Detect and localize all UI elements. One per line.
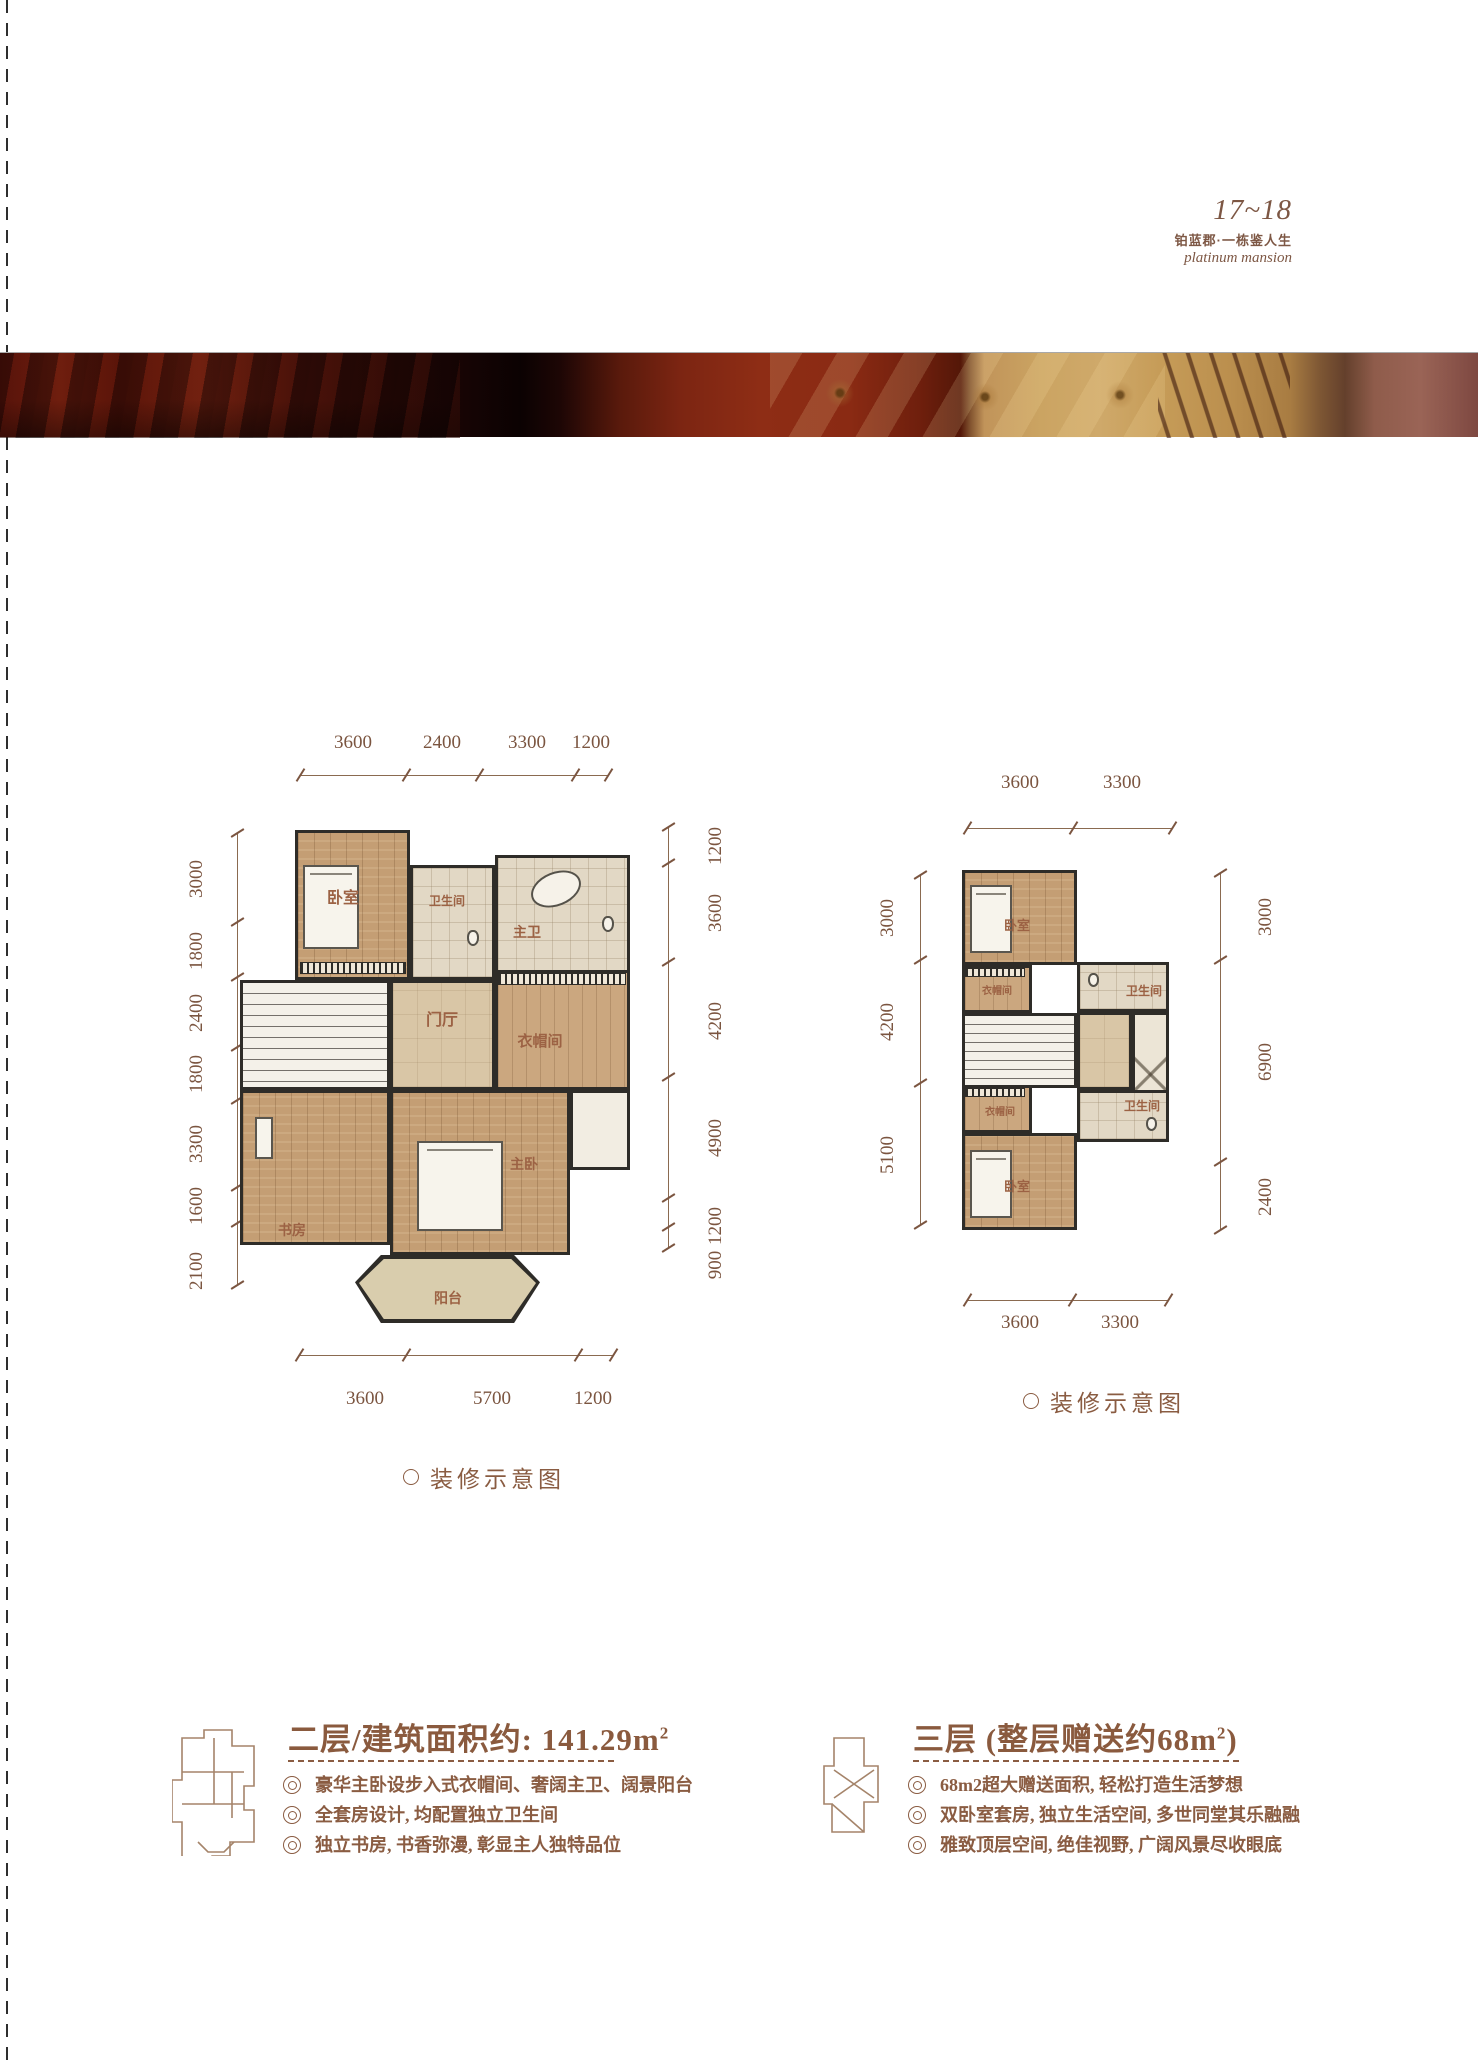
bed-pillow (427, 1149, 493, 1151)
page-number: 17~18 (1175, 194, 1292, 227)
room-master-bath (495, 855, 630, 980)
brand-name-en: platinum mansion (1175, 250, 1292, 267)
dim-label: 3600 (323, 732, 383, 754)
bullet-inner-circle (288, 1841, 297, 1850)
desk (255, 1117, 273, 1159)
dim-label: 3000 (186, 849, 208, 909)
dim-line (668, 827, 669, 1248)
bullet-inner-circle (288, 1811, 297, 1820)
dim-label: 1800 (186, 921, 208, 981)
wardrobe-hatch (300, 962, 406, 974)
brochure-page: 17~18 铂蓝郡·一栋鉴人生 platinum mansion 3600 24… (0, 0, 1478, 2067)
mini-plan-2f-icon (172, 1720, 264, 1856)
title-superscript: 2 (1217, 1724, 1227, 1743)
info-2f-features: 豪华主卧设步入式衣帽间、奢阔主卫、阔景阳台 全套房设计, 均配置独立卫生间 独立… (283, 1772, 823, 1862)
double-circle-bullet-icon (283, 1806, 301, 1824)
staircase (962, 1013, 1077, 1088)
dim-label: 4200 (877, 992, 899, 1052)
double-circle-bullet-icon (283, 1776, 301, 1794)
dim-label: 5100 (877, 1125, 899, 1185)
info-2f-title: 二层/建筑面积约: 141.29m2 (288, 1714, 669, 1759)
info-3f-features: 68m2超大赠送面积, 轻松打造生活梦想 双卧室套房, 独立生活空间, 多世同堂… (908, 1772, 1468, 1862)
title-superscript: 2 (660, 1724, 670, 1743)
dim-label: 3000 (877, 888, 899, 948)
title-text: 二层/建筑面积约: 141.29m (288, 1722, 660, 1757)
double-circle-bullet-icon (908, 1836, 926, 1854)
dim-label: 1200 (561, 732, 621, 754)
brand-name-cn: 铂蓝郡·一栋鉴人生 (1175, 230, 1292, 249)
double-circle-bullet-icon (908, 1806, 926, 1824)
double-circle-bullet-icon (283, 1836, 301, 1854)
dashed-rule (288, 1760, 614, 1762)
utility-cabinets (570, 1090, 630, 1170)
room-label: 衣帽间 (960, 1103, 1040, 1118)
plan-caption-3f: 装修示意图 (1023, 1384, 1185, 1418)
dim-label: 6900 (1255, 1032, 1277, 1092)
dim-line (967, 828, 1172, 829)
feature-item: 雅致顶层空间, 绝佳视野, 广阔风景尽收眼底 (908, 1832, 1468, 1858)
dashed-rule (913, 1760, 1239, 1762)
dim-label: 3300 (1092, 772, 1152, 794)
dim-label: 4200 (705, 991, 727, 1051)
feature-text: 独立书房, 书香弥漫, 彰显主人独特品位 (315, 1832, 621, 1858)
feature-item: 双卧室套房, 独立生活空间, 多世同堂其乐融融 (908, 1802, 1468, 1828)
bed-pillow (976, 893, 1006, 895)
plan-caption-2f: 装修示意图 (403, 1460, 565, 1494)
floor-plan-3f: 卧室 衣帽间 卫生间 卫生间 衣帽间 卧室 (962, 870, 1172, 1235)
room-label: 卫生间 (1102, 1097, 1182, 1114)
room-label: 衣帽间 (500, 1030, 580, 1051)
dim-label: 3600 (335, 1388, 395, 1410)
bullet-inner-circle (913, 1811, 922, 1820)
floor-plan-2f: 卧室 卫生间 主卫 门厅 衣帽间 书房 主卧 阳台 (240, 810, 630, 1325)
room-label: 卧室 (977, 915, 1057, 934)
circle-icon (403, 1469, 419, 1485)
dim-label: 2400 (412, 732, 472, 754)
feature-text: 豪华主卧设步入式衣帽间、奢阔主卫、阔景阳台 (315, 1772, 693, 1798)
bullet-inner-circle (913, 1781, 922, 1790)
hero-photo-strip (0, 352, 1478, 437)
room-label: 阳台 (408, 1288, 488, 1308)
feature-text: 全套房设计, 均配置独立卫生间 (315, 1802, 558, 1828)
dim-label: 2100 (186, 1241, 208, 1301)
dim-label: 3300 (186, 1114, 208, 1174)
dim-label: 4900 (705, 1108, 727, 1168)
wardrobe-hatch (965, 968, 1025, 977)
toilet (1146, 1117, 1157, 1131)
dim-label: 2400 (186, 983, 208, 1043)
caption-text: 装修示意图 (430, 1460, 565, 1494)
dim-label: 900 (705, 1235, 727, 1295)
dim-line (300, 775, 608, 776)
bathtub (526, 863, 587, 914)
hero-drape-strings-texture (1158, 353, 1290, 438)
dim-label: 3300 (497, 732, 557, 754)
dim-label: 5700 (462, 1388, 522, 1410)
bed-pillow (310, 873, 352, 875)
dim-line (1220, 873, 1221, 1230)
room-label: 主卫 (487, 922, 567, 942)
title-text: 三层 (整层赠送约68m (913, 1722, 1217, 1757)
dim-label: 3600 (990, 772, 1050, 794)
double-circle-bullet-icon (908, 1776, 926, 1794)
wardrobe-hatch (965, 1088, 1025, 1097)
room-label: 卫生间 (1104, 982, 1184, 999)
room-label: 卫生间 (407, 892, 487, 909)
feature-text: 68m2超大赠送面积, 轻松打造生活梦想 (940, 1772, 1243, 1798)
room-label: 门厅 (402, 1006, 482, 1030)
dim-label: 3600 (990, 1312, 1050, 1334)
bullet-inner-circle (913, 1841, 922, 1850)
toilet (602, 916, 614, 932)
room-bath (410, 865, 495, 980)
dim-label: 1200 (563, 1388, 623, 1410)
room-label: 主卧 (484, 1154, 564, 1174)
feature-item: 68m2超大赠送面积, 轻松打造生活梦想 (908, 1772, 1468, 1798)
dim-line (299, 1355, 613, 1356)
bullet-inner-circle (288, 1781, 297, 1790)
room-foyer (390, 980, 495, 1090)
feature-text: 双卧室套房, 独立生活空间, 多世同堂其乐融融 (940, 1802, 1300, 1828)
info-3f-title: 三层 (整层赠送约68m2) (913, 1714, 1238, 1759)
left-trim-dashed-line (6, 0, 8, 2067)
masthead: 17~18 铂蓝郡·一栋鉴人生 platinum mansion (1175, 194, 1292, 267)
toilet (1088, 973, 1099, 987)
room-label: 衣帽间 (957, 982, 1037, 997)
mini-plan-3f-icon (822, 1730, 890, 1840)
bed-pillow (976, 1158, 1006, 1160)
room-label: 卧室 (303, 884, 383, 908)
feature-item: 豪华主卧设步入式衣帽间、奢阔主卫、阔景阳台 (283, 1772, 823, 1798)
dim-label: 1800 (186, 1044, 208, 1104)
caption-text: 装修示意图 (1050, 1384, 1185, 1418)
dim-label: 2400 (1255, 1167, 1277, 1227)
dim-label: 3300 (1090, 1312, 1150, 1334)
circle-icon (1023, 1393, 1039, 1409)
dim-label: 1200 (705, 816, 727, 876)
hero-tufted-leather-texture (770, 353, 1165, 438)
dim-label: 3600 (705, 883, 727, 943)
toilet (467, 930, 479, 946)
feature-item: 全套房设计, 均配置独立卫生间 (283, 1802, 823, 1828)
dim-line (967, 1300, 1168, 1301)
hall-landing (1077, 1012, 1132, 1090)
feature-text: 雅致顶层空间, 绝佳视野, 广阔风景尽收眼底 (940, 1832, 1282, 1858)
room-label: 书房 (252, 1220, 332, 1240)
hero-sofa-texture (0, 353, 460, 438)
title-close-paren: ) (1226, 1722, 1237, 1757)
dim-line (237, 833, 238, 1285)
staircase (240, 980, 390, 1090)
dim-label: 1600 (186, 1176, 208, 1236)
feature-item: 独立书房, 书香弥漫, 彰显主人独特品位 (283, 1832, 823, 1858)
wardrobe-hatch (498, 973, 626, 985)
dim-line (920, 875, 921, 1225)
dim-label: 3000 (1255, 887, 1277, 947)
room-label: 卧室 (977, 1176, 1057, 1195)
